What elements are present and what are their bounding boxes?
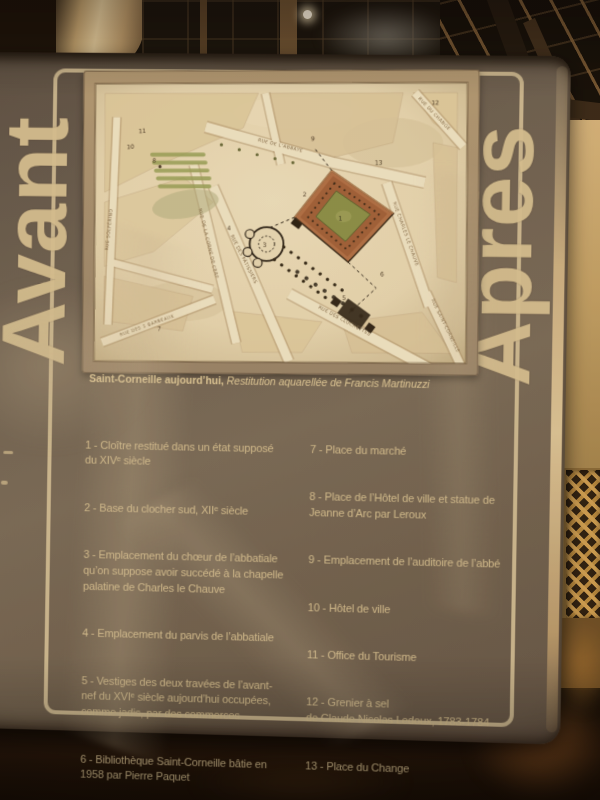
map-number: 12 [431, 100, 439, 107]
map-number: 8 [152, 158, 156, 165]
legend-item: 6 - Bibliothèque Saint-Corneille bâtie e… [80, 752, 297, 790]
map-number: 10 [127, 144, 135, 151]
legend-item: 10 - Hôtel de ville [307, 601, 527, 622]
map-number: 13 [375, 160, 383, 167]
legend-item: 11 - Office du Tourisme [307, 648, 527, 670]
legend-item: 1 - Cloître restitué dans un état suppos… [85, 438, 302, 474]
legend-column-right: 7 - Place du marché 8 - Place de l’Hôtel… [304, 411, 531, 800]
map-number: 4 [227, 225, 231, 232]
legend-item: 7 - Place du marché [310, 443, 530, 463]
legend-item: 3 - Emplacement du chœur de l’abbatiale … [83, 548, 301, 600]
legend-item: 5 - Vestiges des deux travées de l’avant… [81, 674, 299, 727]
map-number: 6 [380, 271, 384, 278]
map-number: 5 [342, 295, 346, 302]
map-number: 9 [311, 136, 315, 143]
map-number: 11 [139, 128, 147, 135]
legend-item: 8 - Place de l’Hôtel de ville et statue … [309, 490, 530, 526]
interpretive-panel: Avant Après [0, 52, 571, 745]
legend-item: 2 - Base du clocher sud, XIIᵉ siècle [84, 501, 301, 521]
legend-item: 4 - Emplacement du parvis de l’abbatiale [82, 627, 299, 648]
legend-column-left: 1 - Cloître restitué dans un état suppos… [79, 407, 302, 800]
legend-item: 12 - Grenier à sel de Claude Nicolas Led… [306, 696, 526, 734]
legend-item: 13 - Place du Change [305, 759, 525, 781]
distant-light [303, 10, 312, 19]
map-frame: 1 2 3 4 5 6 7 8 9 10 11 12 13 [82, 70, 480, 376]
worn-paint-fleck [3, 451, 13, 454]
panel-title-avant: Avant [0, 116, 89, 367]
map-number: 7 [157, 326, 161, 333]
legend: 1 - Cloître restitué dans un état suppos… [79, 407, 530, 800]
worn-paint-fleck [1, 481, 8, 485]
map-number: 1 [339, 215, 343, 222]
photo-of-information-panel: Avant Après [0, 0, 600, 800]
watercolor-town-plan: 1 2 3 4 5 6 7 8 9 10 11 12 13 [93, 82, 469, 365]
map-number: 3 [263, 242, 267, 249]
legend-item: 9 - Emplacement de l’auditoire de l’abbé [308, 553, 528, 574]
air-vent-grille [564, 468, 600, 622]
caption-title: Saint-Corneille aujourd’hui, [89, 373, 224, 387]
map-number: 2 [303, 191, 307, 198]
